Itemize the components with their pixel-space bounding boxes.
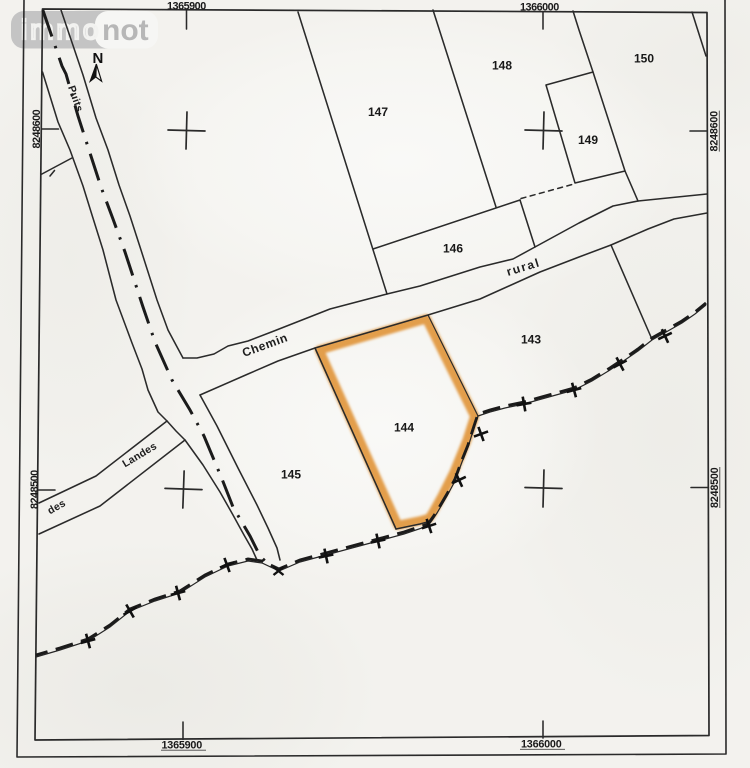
svg-text:150: 150 [634,52,654,66]
svg-text:148: 148 [492,59,512,73]
svg-text:149: 149 [578,133,598,147]
svg-text:1366000: 1366000 [521,739,562,751]
svg-text:8248600: 8248600 [709,111,721,152]
svg-text:1365900: 1365900 [162,739,203,751]
svg-text:146: 146 [443,242,463,256]
svg-text:8248500: 8248500 [709,467,721,508]
svg-text:8248600: 8248600 [31,109,43,149]
svg-text:8248500: 8248500 [29,470,41,510]
svg-text:N: N [93,50,104,67]
svg-text:144: 144 [394,421,414,435]
svg-text:147: 147 [368,105,388,119]
svg-text:1365900: 1365900 [167,1,207,13]
svg-text:1366000: 1366000 [520,2,560,14]
svg-text:143: 143 [521,333,541,347]
svg-text:immo: immo [21,14,101,45]
svg-text:not: not [102,14,149,47]
svg-text:145: 145 [281,468,301,482]
